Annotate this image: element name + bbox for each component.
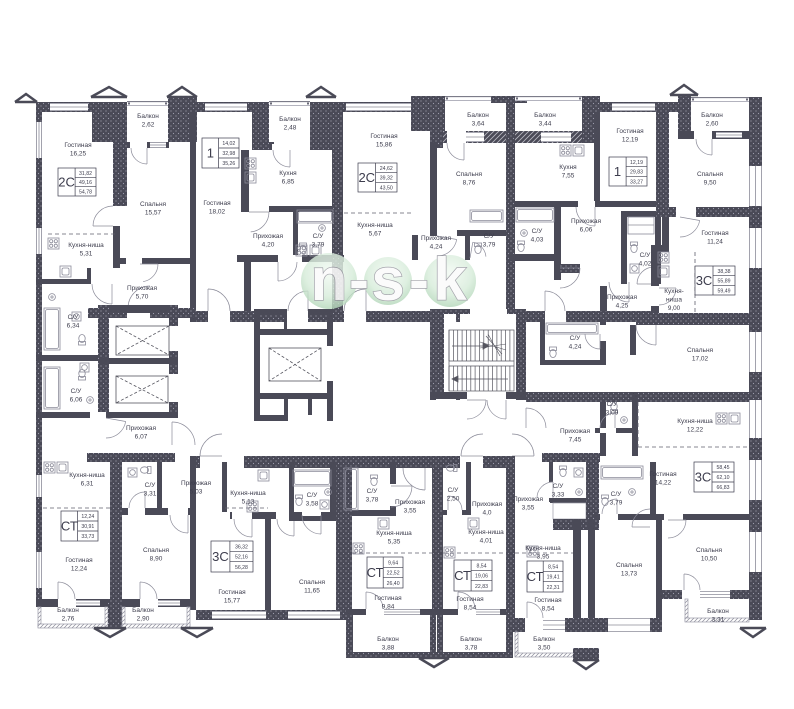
svg-text:k: k <box>433 246 467 313</box>
svg-text:18,02: 18,02 <box>209 209 226 216</box>
svg-text:Кухня-ниша: Кухня-ниша <box>468 529 504 536</box>
svg-text:4,24: 4,24 <box>569 344 582 351</box>
svg-text:9,00: 9,00 <box>668 305 681 312</box>
svg-text:3,79: 3,79 <box>610 500 623 507</box>
svg-text:Прихожая: Прихожая <box>421 235 452 242</box>
svg-text:12,19: 12,19 <box>622 137 639 144</box>
svg-text:56,28: 56,28 <box>235 565 248 571</box>
svg-text:Прихожая: Прихожая <box>472 501 503 508</box>
svg-text:3,64: 3,64 <box>472 121 485 128</box>
svg-text:9,50: 9,50 <box>704 180 717 187</box>
svg-text:Спальня: Спальня <box>140 201 167 208</box>
svg-text:Гостиная: Гостиная <box>456 596 484 603</box>
svg-text:Гостиная: Гостиная <box>374 595 402 602</box>
svg-text:2,90: 2,90 <box>137 616 150 623</box>
svg-text:Балкон: Балкон <box>533 636 555 643</box>
svg-text:Кухня-ниша: Кухня-ниша <box>357 222 393 229</box>
svg-text:Прихожая: Прихожая <box>607 294 638 301</box>
svg-text:10,50: 10,50 <box>701 556 718 563</box>
svg-text:Кухня-: Кухня- <box>664 288 684 295</box>
svg-text:2,76: 2,76 <box>62 616 75 623</box>
svg-text:11,65: 11,65 <box>304 588 320 595</box>
svg-text:15,77: 15,77 <box>224 598 241 605</box>
svg-text:22,52: 22,52 <box>387 571 400 577</box>
svg-text:15,86: 15,86 <box>376 142 393 149</box>
svg-text:15,57: 15,57 <box>145 210 162 217</box>
svg-text:29,83: 29,83 <box>630 170 643 176</box>
svg-text:С/У: С/У <box>448 487 460 494</box>
svg-text:Прихожая: Прихожая <box>126 425 157 432</box>
svg-text:С/У: С/У <box>484 233 496 240</box>
svg-text:3С: 3С <box>696 273 713 288</box>
svg-text:59,49: 59,49 <box>718 288 731 294</box>
svg-text:Прихожая: Прихожая <box>253 233 284 240</box>
svg-text:С/У: С/У <box>553 483 565 490</box>
svg-text:Балкон: Балкон <box>279 116 301 123</box>
svg-text:СТ: СТ <box>367 565 384 580</box>
svg-text:8,90: 8,90 <box>150 556 163 563</box>
svg-text:11,24: 11,24 <box>707 239 723 246</box>
svg-text:С/У: С/У <box>611 491 623 498</box>
svg-text:58,45: 58,45 <box>717 465 730 471</box>
svg-text:Балкон: Балкон <box>57 607 79 614</box>
svg-text:5,70: 5,70 <box>136 294 149 301</box>
svg-text:2,62: 2,62 <box>142 122 155 129</box>
svg-text:3,78: 3,78 <box>366 497 379 504</box>
svg-text:32,98: 32,98 <box>222 151 235 157</box>
svg-text:4,03: 4,03 <box>531 237 544 244</box>
svg-text:52,16: 52,16 <box>235 555 248 561</box>
svg-text:2,48: 2,48 <box>284 125 297 132</box>
svg-text:24,62: 24,62 <box>380 166 393 172</box>
svg-text:Балкон: Балкон <box>137 113 159 120</box>
svg-text:С/У: С/У <box>570 335 582 342</box>
svg-text:12,24: 12,24 <box>81 514 94 520</box>
svg-text:Балкон: Балкон <box>707 608 729 615</box>
svg-text:Балкон: Балкон <box>534 112 556 119</box>
svg-text:С/У: С/У <box>607 401 619 408</box>
svg-text:3,88: 3,88 <box>382 645 395 652</box>
svg-text:С/У: С/У <box>640 252 652 259</box>
svg-text:СТ: СТ <box>61 519 78 534</box>
svg-text:Гостиная: Гостиная <box>65 557 93 564</box>
svg-text:Гостиная: Гостиная <box>218 589 246 596</box>
svg-text:2С: 2С <box>58 175 75 190</box>
svg-text:33,27: 33,27 <box>630 179 643 185</box>
svg-text:12,19: 12,19 <box>630 160 643 166</box>
svg-text:-: - <box>409 246 429 313</box>
svg-text:35,26: 35,26 <box>222 161 235 167</box>
svg-text:Кухня-ниша: Кухня-ниша <box>376 530 412 537</box>
svg-text:49,16: 49,16 <box>79 180 92 186</box>
svg-text:Балкон: Балкон <box>701 112 723 119</box>
svg-text:9,64: 9,64 <box>388 560 398 566</box>
svg-text:9,84: 9,84 <box>382 604 395 611</box>
svg-text:Спальня: Спальня <box>697 171 724 178</box>
svg-text:5,67: 5,67 <box>369 231 382 238</box>
svg-text:Кухня-ниша: Кухня-ниша <box>69 472 105 479</box>
svg-text:С/У: С/У <box>145 482 157 489</box>
svg-text:6,31: 6,31 <box>81 481 94 488</box>
svg-text:Кухня: Кухня <box>279 170 297 177</box>
svg-text:22,83: 22,83 <box>475 584 488 590</box>
svg-text:С/У: С/У <box>307 492 319 499</box>
svg-text:3,79: 3,79 <box>483 242 496 249</box>
svg-text:Гостиная: Гостиная <box>616 128 644 135</box>
svg-text:39,32: 39,32 <box>380 176 393 182</box>
svg-text:Балкон: Балкон <box>467 112 489 119</box>
svg-text:17,02: 17,02 <box>692 356 709 363</box>
svg-text:С/У: С/У <box>71 388 83 395</box>
svg-text:Прихожая: Прихожая <box>571 218 602 225</box>
svg-text:26,40: 26,40 <box>387 581 400 587</box>
svg-text:6,06: 6,06 <box>70 397 83 404</box>
svg-text:3,95: 3,95 <box>537 554 550 561</box>
svg-text:СТ: СТ <box>454 568 471 583</box>
svg-text:3С: 3С <box>695 470 712 485</box>
svg-text:8,54: 8,54 <box>548 564 558 570</box>
svg-text:1: 1 <box>614 164 621 179</box>
svg-text:1: 1 <box>207 146 214 161</box>
svg-text:Спальня: Спальня <box>687 347 714 354</box>
svg-text:Гостиная: Гостиная <box>64 142 92 149</box>
svg-text:Прихожая: Прихожая <box>127 285 158 292</box>
svg-text:Прихожая: Прихожая <box>181 480 212 487</box>
svg-text:Спальня: Спальня <box>456 171 483 178</box>
svg-text:6,34: 6,34 <box>67 323 80 330</box>
svg-text:8,54: 8,54 <box>542 606 555 613</box>
svg-text:4,0: 4,0 <box>482 510 491 517</box>
svg-text:19,41: 19,41 <box>547 575 560 581</box>
svg-text:7,45: 7,45 <box>569 437 582 444</box>
svg-text:Кухня: Кухня <box>559 164 577 171</box>
svg-text:СТ: СТ <box>527 569 544 584</box>
svg-text:3,78: 3,78 <box>465 645 478 652</box>
svg-text:12,24: 12,24 <box>71 566 88 573</box>
svg-text:Балкон: Балкон <box>132 607 154 614</box>
svg-text:3,58: 3,58 <box>306 501 319 508</box>
svg-text:6,07: 6,07 <box>135 434 148 441</box>
svg-text:7,55: 7,55 <box>562 173 575 180</box>
svg-text:3,55: 3,55 <box>404 508 417 515</box>
svg-text:Гостиная: Гостиная <box>649 471 677 478</box>
svg-text:Спальня: Спальня <box>299 579 326 586</box>
svg-text:3С: 3С <box>212 549 229 564</box>
svg-text:n: n <box>311 246 348 313</box>
svg-text:-: - <box>349 246 369 313</box>
svg-text:6,85: 6,85 <box>282 179 295 186</box>
svg-text:66,83: 66,83 <box>717 485 730 491</box>
svg-text:4,02: 4,02 <box>639 261 652 268</box>
svg-text:22,31: 22,31 <box>547 585 560 591</box>
svg-text:3,55: 3,55 <box>522 505 535 512</box>
svg-text:Прихожая: Прихожая <box>513 496 544 503</box>
svg-text:4,01: 4,01 <box>480 538 493 545</box>
svg-text:Кухня-ниша: Кухня-ниша <box>230 490 266 497</box>
svg-text:5,31: 5,31 <box>80 251 93 258</box>
svg-text:3,09: 3,09 <box>606 410 619 417</box>
svg-text:3,31: 3,31 <box>144 491 157 498</box>
svg-text:14,22: 14,22 <box>655 480 672 487</box>
svg-text:ниша: ниша <box>666 297 682 304</box>
svg-text:s: s <box>371 246 404 313</box>
svg-text:С/У: С/У <box>68 314 80 321</box>
svg-text:Балкон: Балкон <box>460 636 482 643</box>
svg-text:Прихожая: Прихожая <box>560 428 591 435</box>
svg-text:Спальня: Спальня <box>696 547 723 554</box>
svg-text:36,32: 36,32 <box>235 544 248 550</box>
svg-text:55,89: 55,89 <box>718 279 731 285</box>
svg-text:Кухня-ниша: Кухня-ниша <box>677 418 713 425</box>
svg-text:43,50: 43,50 <box>380 185 393 191</box>
svg-text:12,22: 12,22 <box>687 427 704 434</box>
svg-text:Кухня-ниша: Кухня-ниша <box>525 545 561 552</box>
svg-text:Балкон: Балкон <box>377 636 399 643</box>
svg-text:Прихожая: Прихожая <box>395 499 426 506</box>
svg-text:С/У: С/У <box>532 228 544 235</box>
svg-text:54,78: 54,78 <box>79 190 92 196</box>
svg-text:Гостиная: Гостиная <box>370 133 398 140</box>
svg-text:62,10: 62,10 <box>717 475 730 481</box>
svg-text:3,31: 3,31 <box>712 617 725 624</box>
svg-text:19,06: 19,06 <box>475 574 488 580</box>
svg-text:2,60: 2,60 <box>706 121 719 128</box>
svg-text:3,50: 3,50 <box>538 645 551 652</box>
svg-text:Гостиная: Гостиная <box>534 597 562 604</box>
svg-text:Кухня-ниша: Кухня-ниша <box>68 242 104 249</box>
svg-text:2С: 2С <box>358 170 375 185</box>
svg-text:33,73: 33,73 <box>81 534 94 540</box>
svg-text:Гостиная: Гостиная <box>203 200 231 207</box>
svg-text:8,54: 8,54 <box>464 605 477 612</box>
svg-text:3,33: 3,33 <box>552 492 565 499</box>
svg-text:8,54: 8,54 <box>476 563 486 569</box>
svg-text:4,20: 4,20 <box>262 242 275 249</box>
svg-text:5,35: 5,35 <box>388 539 401 546</box>
svg-text:14,02: 14,02 <box>222 141 235 147</box>
svg-text:3,44: 3,44 <box>539 121 552 128</box>
svg-text:13,73: 13,73 <box>621 571 638 578</box>
svg-text:6,06: 6,06 <box>580 227 593 234</box>
svg-text:С/У: С/У <box>367 488 379 495</box>
svg-text:Спальня: Спальня <box>143 547 170 554</box>
svg-text:5,03: 5,03 <box>190 489 203 496</box>
svg-text:38,38: 38,38 <box>718 269 731 275</box>
svg-text:16,25: 16,25 <box>70 151 87 158</box>
svg-text:Гостиная: Гостиная <box>701 230 729 237</box>
svg-text:31,82: 31,82 <box>79 171 92 177</box>
svg-text:Спальня: Спальня <box>616 562 643 569</box>
svg-text:8,76: 8,76 <box>463 180 476 187</box>
svg-text:2,50: 2,50 <box>447 496 460 503</box>
svg-text:4,25: 4,25 <box>616 303 629 310</box>
svg-text:С/У: С/У <box>313 233 325 240</box>
svg-text:5,13: 5,13 <box>242 499 255 506</box>
svg-text:30,91: 30,91 <box>81 524 94 530</box>
